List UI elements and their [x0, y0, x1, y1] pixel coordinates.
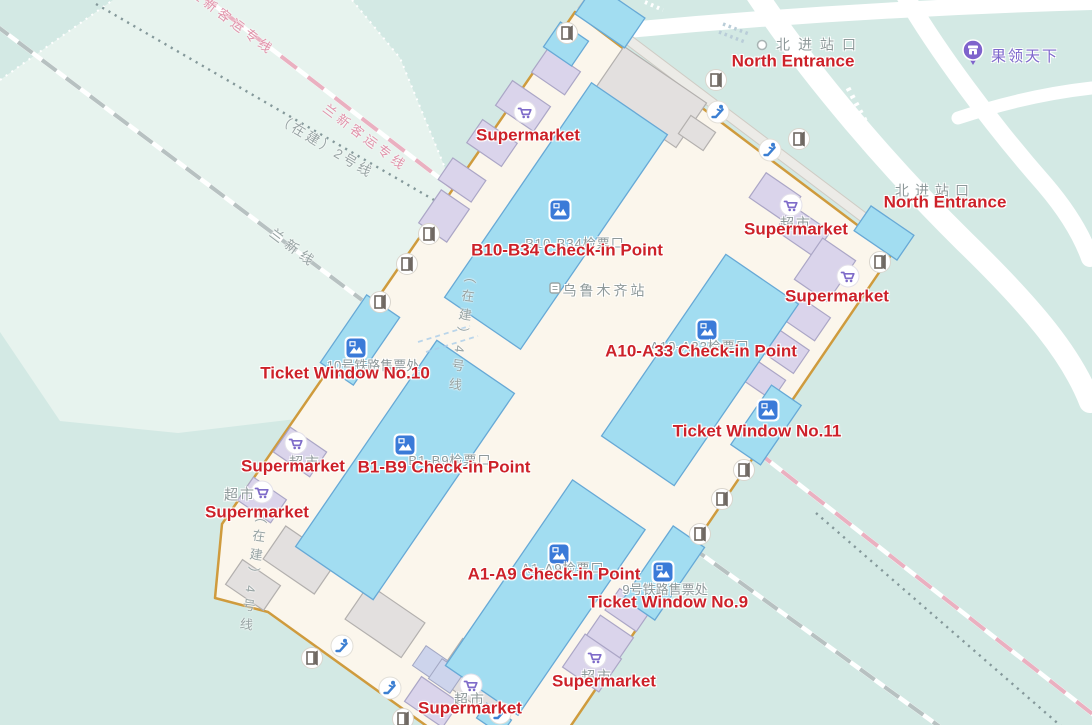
- door-icon[interactable]: [370, 292, 391, 313]
- door-icon[interactable]: [302, 648, 323, 669]
- cart-icon[interactable]: [780, 194, 802, 216]
- escalator-icon[interactable]: [379, 677, 401, 699]
- escalator-icon[interactable]: [489, 702, 511, 724]
- escalator-icon[interactable]: [331, 635, 353, 657]
- checkin-icon[interactable]: [652, 561, 675, 584]
- station-marker-icon[interactable]: [550, 283, 560, 293]
- map-canvas[interactable]: 兰新客运专线兰新客运专线（在建）2号线兰新线（在建）4号线（在建）4号线北进站口…: [0, 0, 1092, 725]
- cart-icon[interactable]: [514, 101, 536, 123]
- door-icon[interactable]: [397, 254, 418, 275]
- escalator-icon[interactable]: [759, 139, 781, 161]
- basemap: [0, 0, 1092, 725]
- door-icon[interactable]: [789, 129, 810, 150]
- checkin-icon[interactable]: [696, 319, 719, 342]
- door-icon[interactable]: [557, 23, 578, 44]
- door-icon[interactable]: [712, 489, 733, 510]
- cart-icon[interactable]: [584, 646, 606, 668]
- door-icon[interactable]: [734, 460, 755, 481]
- door-icon[interactable]: [393, 709, 414, 725]
- checkin-icon[interactable]: [345, 337, 368, 360]
- door-icon[interactable]: [690, 524, 711, 545]
- checkin-icon[interactable]: [549, 199, 572, 222]
- cart-icon[interactable]: [837, 265, 859, 287]
- checkin-icon[interactable]: [548, 543, 571, 566]
- door-icon[interactable]: [870, 252, 891, 273]
- escalator-icon[interactable]: [707, 101, 729, 123]
- door-icon[interactable]: [706, 70, 727, 91]
- checkin-icon[interactable]: [757, 399, 780, 422]
- cart-icon[interactable]: [460, 674, 482, 696]
- entrance-marker-icon[interactable]: [758, 41, 767, 50]
- cart-icon[interactable]: [251, 481, 273, 503]
- door-icon[interactable]: [419, 224, 440, 245]
- cart-icon[interactable]: [285, 432, 307, 454]
- checkin-icon[interactable]: [394, 434, 417, 457]
